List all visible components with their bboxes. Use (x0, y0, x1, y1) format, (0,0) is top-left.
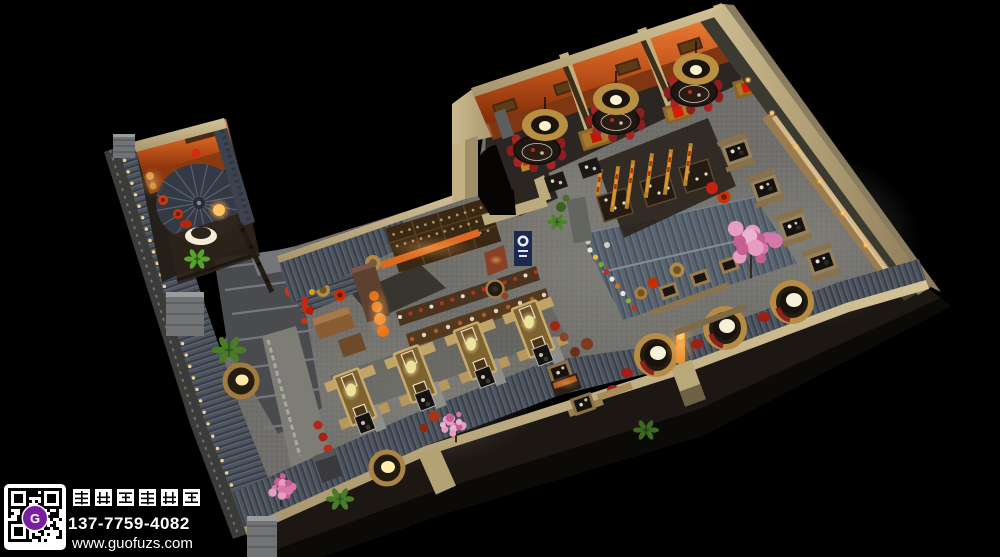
svg-text:G: G (30, 511, 40, 526)
svg-text:137-7759-4082: 137-7759-4082 (68, 514, 190, 533)
svg-text:www.guofuzs.com: www.guofuzs.com (71, 535, 193, 552)
